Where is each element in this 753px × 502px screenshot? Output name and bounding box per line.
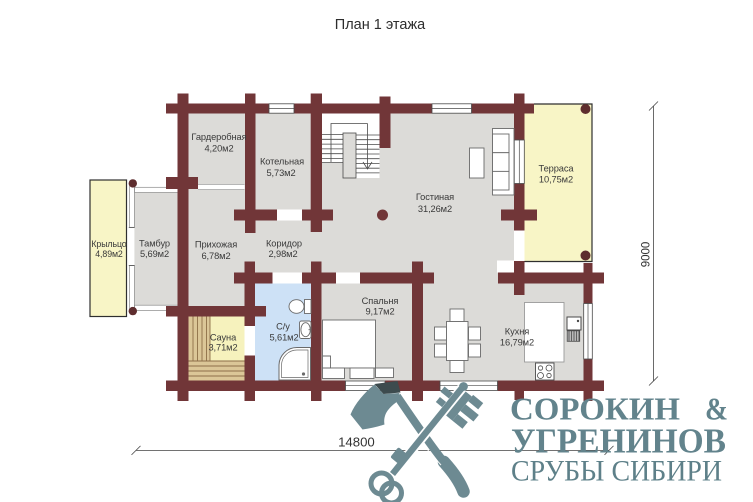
svg-text:31,26м2: 31,26м2 [418, 204, 452, 214]
svg-text:Терраса: Терраса [539, 164, 575, 174]
svg-text:14800: 14800 [338, 434, 375, 449]
svg-text:Прихожая: Прихожая [195, 240, 237, 250]
svg-text:Коридор: Коридор [266, 239, 302, 249]
svg-text:Гардеробная: Гардеробная [191, 132, 246, 142]
svg-text:2,98м2: 2,98м2 [268, 249, 297, 259]
svg-text:10,75м2: 10,75м2 [539, 175, 573, 185]
svg-text:Тамбур: Тамбур [139, 239, 170, 249]
svg-text:Сауна: Сауна [210, 333, 237, 343]
svg-text:Кухня: Кухня [505, 327, 529, 337]
svg-text:5,69м2: 5,69м2 [140, 249, 169, 259]
svg-text:4,20м2: 4,20м2 [204, 144, 233, 154]
svg-text:4,89м2: 4,89м2 [95, 249, 123, 259]
svg-text:9000: 9000 [640, 242, 652, 268]
svg-text:Спальня: Спальня [362, 296, 399, 306]
svg-text:6,78м2: 6,78м2 [201, 251, 230, 261]
svg-text:План 1 этажа: План 1 этажа [335, 17, 426, 33]
svg-text:С/у: С/у [276, 322, 290, 332]
svg-text:5,73м2: 5,73м2 [266, 168, 295, 178]
svg-text:9,17м2: 9,17м2 [365, 307, 394, 317]
svg-text:Гостиная: Гостиная [416, 192, 454, 202]
svg-text:5,61м2: 5,61м2 [269, 333, 298, 343]
svg-text:3,71м2: 3,71м2 [208, 343, 237, 353]
svg-text:16,79м2: 16,79м2 [500, 338, 534, 348]
svg-text:СРУБЫ СИБИРИ: СРУБЫ СИБИРИ [511, 455, 722, 488]
svg-text:Крыльцо: Крыльцо [91, 239, 126, 249]
svg-text:Котельная: Котельная [260, 157, 304, 167]
